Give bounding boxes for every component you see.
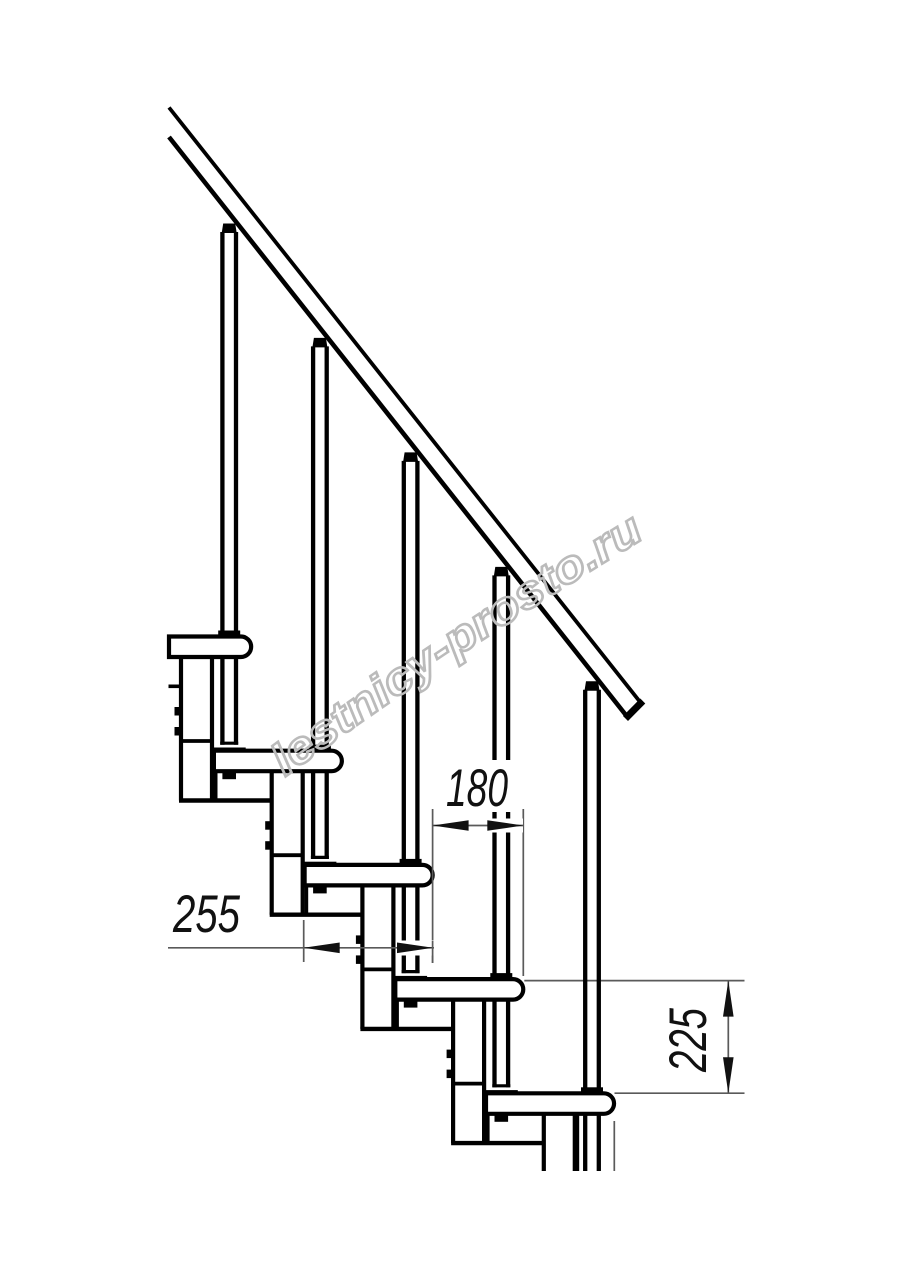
svg-text:180: 180	[446, 759, 508, 818]
svg-text:255: 255	[172, 885, 240, 944]
svg-text:225: 225	[659, 1008, 718, 1073]
